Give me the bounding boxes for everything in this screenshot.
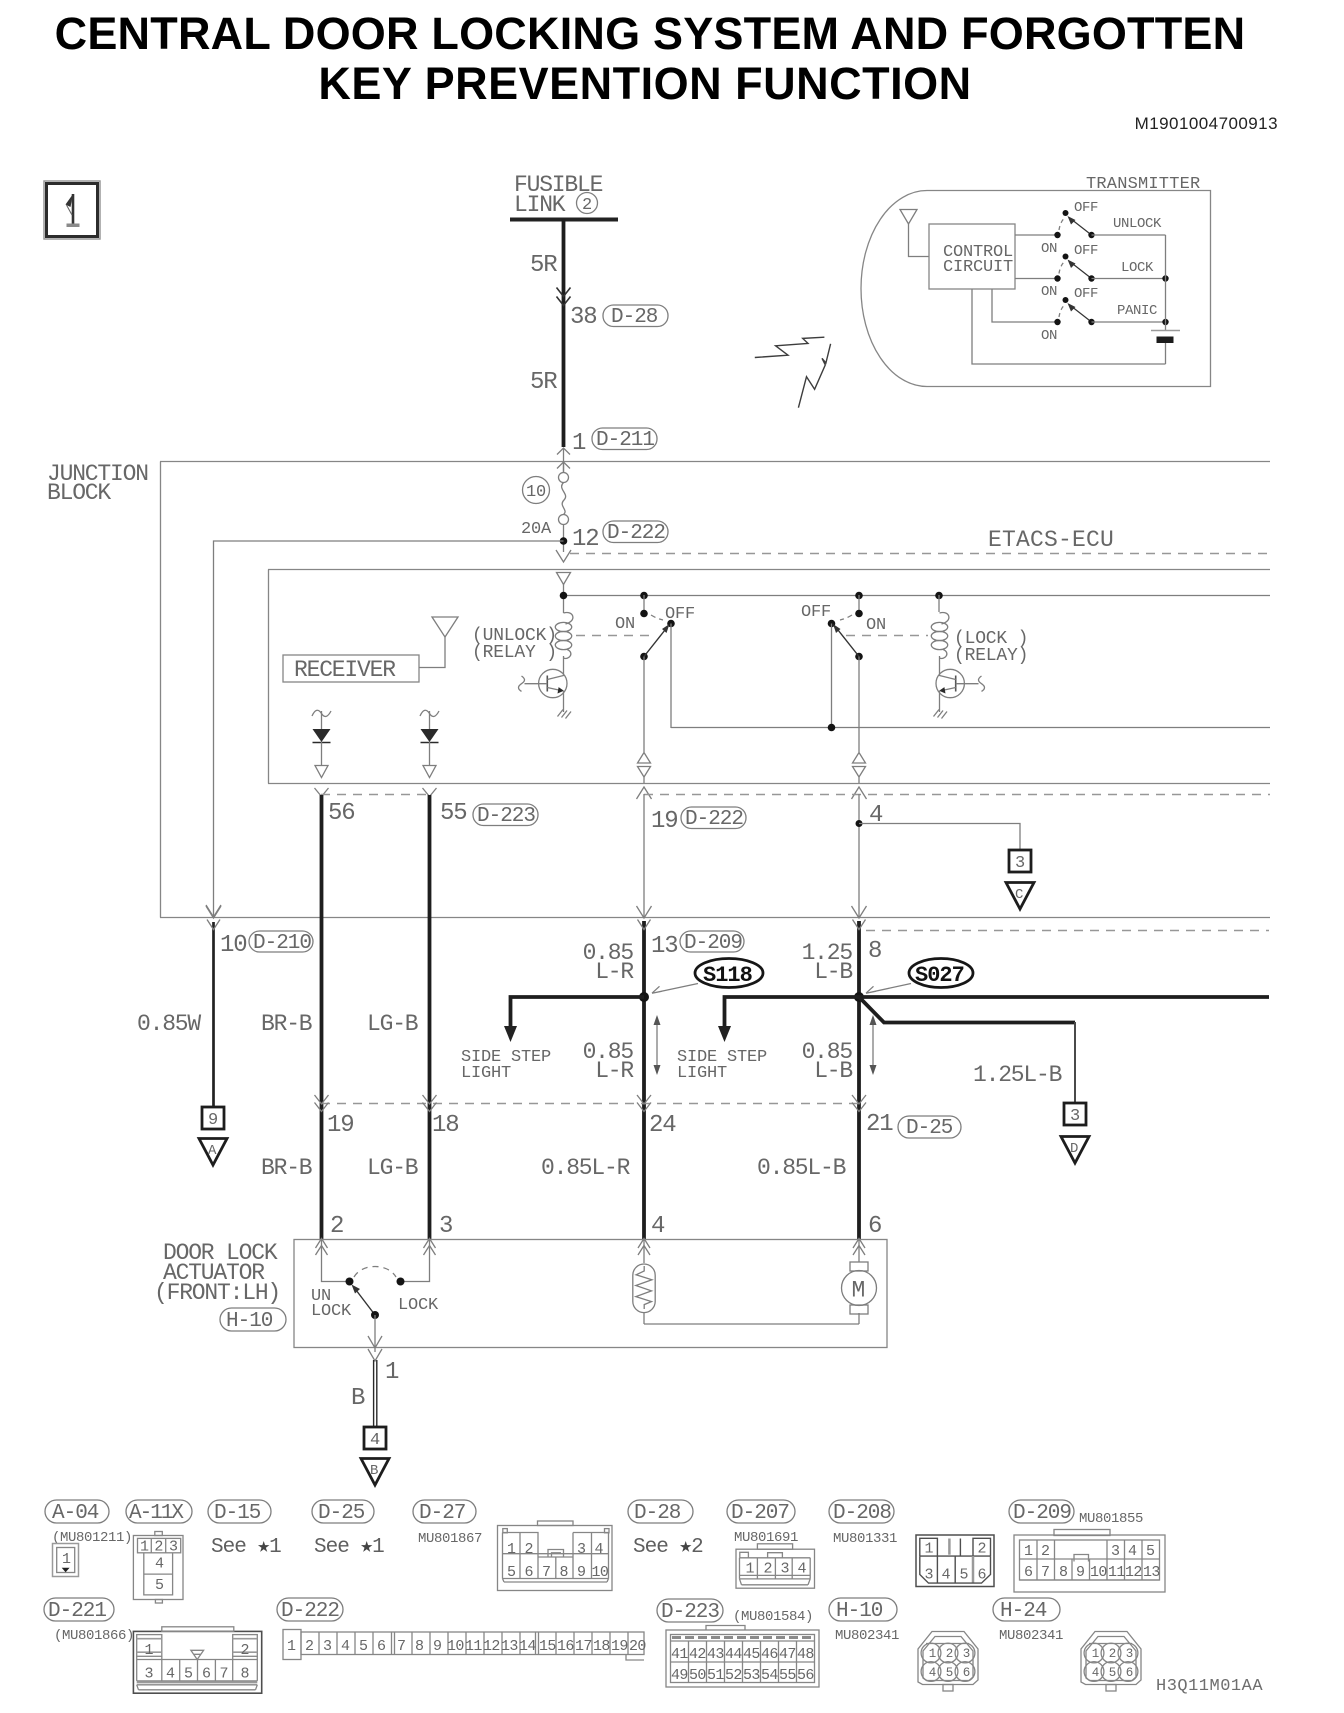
svg-text:12: 12 [572,526,598,553]
svg-text:12: 12 [483,1638,500,1655]
svg-text:OFF: OFF [1074,200,1098,216]
svg-text:D: D [1070,1141,1078,1157]
svg-text:(MU801866): (MU801866) [54,1628,134,1644]
svg-text:14: 14 [519,1638,536,1655]
svg-text:8: 8 [241,1666,250,1683]
svg-text:6: 6 [202,1666,211,1683]
svg-text:CIRCUIT: CIRCUIT [943,258,1013,277]
svg-text:4: 4 [798,1561,807,1578]
svg-text:3: 3 [1126,1647,1134,1661]
svg-text:41: 41 [671,1646,688,1663]
svg-text:18: 18 [593,1638,610,1655]
svg-text:LINK: LINK [514,192,566,218]
svg-text:M1901004700913: M1901004700913 [1135,114,1278,133]
svg-text:5: 5 [1109,1666,1117,1680]
svg-text:MU801855: MU801855 [1079,1511,1143,1527]
svg-text:M: M [852,1278,865,1304]
svg-text:6: 6 [963,1666,971,1680]
svg-text:19: 19 [327,1112,353,1139]
svg-text:7: 7 [542,1564,550,1581]
svg-text:8: 8 [560,1564,569,1581]
svg-text:L-B: L-B [814,959,852,985]
svg-text:BLOCK: BLOCK [47,480,111,506]
svg-text:BR-B: BR-B [261,1155,312,1181]
svg-text:ON: ON [1041,284,1057,300]
svg-text:8: 8 [415,1638,424,1655]
svg-text:D-207: D-207 [731,1502,789,1525]
svg-text:10: 10 [447,1638,464,1655]
svg-text:12: 12 [1125,1564,1142,1581]
svg-text:11: 11 [1108,1564,1125,1581]
svg-text:4: 4 [166,1666,175,1683]
svg-text:See ★1: See ★1 [314,1536,384,1559]
svg-text:43: 43 [707,1646,724,1663]
svg-text:B: B [370,1463,378,1479]
svg-text:24: 24 [649,1112,676,1139]
svg-text:See ★1: See ★1 [211,1536,281,1559]
svg-text:1: 1 [572,430,586,457]
svg-text:11: 11 [465,1638,482,1655]
svg-text:48: 48 [797,1646,814,1663]
svg-text:B: B [351,1385,365,1412]
svg-text:D-222: D-222 [281,1600,339,1623]
svg-text:44: 44 [725,1646,742,1663]
svg-text:1: 1 [62,1551,71,1568]
svg-text:5: 5 [946,1666,954,1680]
svg-text:9: 9 [433,1638,441,1655]
svg-text:5R: 5R [530,369,557,396]
svg-text:19: 19 [651,808,677,835]
svg-text:5: 5 [359,1638,368,1655]
svg-text:OFF: OFF [801,603,831,622]
svg-text:17: 17 [575,1638,592,1655]
svg-text:D-221: D-221 [48,1600,106,1623]
svg-text:6: 6 [1024,1564,1033,1581]
svg-text:1: 1 [507,1541,516,1558]
svg-text:H-10: H-10 [226,1310,273,1333]
svg-text:19: 19 [611,1638,628,1655]
svg-text:2: 2 [525,1541,533,1558]
svg-text:5: 5 [155,1577,164,1594]
svg-text:MU802341: MU802341 [835,1628,899,1644]
svg-text:4: 4 [1092,1666,1100,1680]
svg-text:2: 2 [764,1561,772,1578]
svg-text:L-R: L-R [595,959,634,985]
svg-text:2: 2 [1109,1647,1117,1661]
svg-text:2: 2 [241,1642,249,1659]
svg-text:13: 13 [501,1638,518,1655]
svg-text:3: 3 [169,1539,178,1556]
svg-text:A-11X: A-11X [129,1502,184,1525]
svg-text:(RELAY): (RELAY) [954,646,1028,666]
svg-text:D-209: D-209 [1013,1502,1071,1525]
svg-text:3: 3 [439,1213,452,1240]
svg-text:56: 56 [328,800,354,827]
svg-text:2: 2 [305,1638,313,1655]
svg-text:4: 4 [869,802,883,829]
svg-text:(RELAY ): (RELAY ) [472,643,557,663]
svg-text:5R: 5R [530,252,557,279]
svg-text:18: 18 [432,1112,458,1139]
svg-text:54: 54 [761,1667,778,1684]
svg-text:0.85L-R: 0.85L-R [541,1155,631,1181]
svg-text:OFF: OFF [1074,243,1098,259]
svg-text:5: 5 [1146,1543,1155,1560]
svg-text:20: 20 [629,1638,646,1655]
svg-text:L-B: L-B [814,1058,852,1084]
svg-text:4: 4 [942,1567,951,1584]
svg-text:LIGHT: LIGHT [677,1064,727,1083]
svg-text:D-25: D-25 [318,1502,365,1525]
svg-text:1: 1 [385,1359,399,1386]
svg-text:ON: ON [615,615,635,634]
svg-text:8: 8 [868,938,881,965]
svg-text:3: 3 [963,1647,971,1661]
svg-text:56: 56 [797,1667,814,1684]
svg-text:4: 4 [1128,1543,1137,1560]
svg-text:51: 51 [707,1667,724,1684]
svg-text:7: 7 [220,1666,228,1683]
svg-text:A-04: A-04 [52,1502,99,1525]
svg-text:H-24: H-24 [1000,1600,1047,1623]
svg-text:5: 5 [184,1666,193,1683]
svg-text:D-210: D-210 [253,932,311,955]
svg-text:LG-B: LG-B [367,1011,418,1037]
svg-text:D-223: D-223 [477,805,535,828]
svg-text:3: 3 [1111,1543,1120,1560]
svg-text:16: 16 [557,1638,574,1655]
svg-text:C: C [1015,887,1023,903]
svg-text:9: 9 [577,1564,585,1581]
svg-text:5: 5 [507,1564,516,1581]
svg-text:13: 13 [651,933,677,960]
svg-text:LIGHT: LIGHT [461,1064,511,1083]
svg-text:1: 1 [925,1541,934,1558]
svg-text:S118: S118 [703,963,753,988]
svg-text:(FRONT:LH): (FRONT:LH) [154,1280,280,1306]
svg-text:1: 1 [746,1561,755,1578]
svg-text:D-25: D-25 [906,1117,953,1140]
svg-text:2: 2 [978,1541,986,1558]
svg-text:D-27: D-27 [419,1502,465,1525]
svg-text:D-28: D-28 [611,306,658,329]
svg-text:4: 4 [651,1213,665,1240]
svg-text:ON: ON [1041,328,1057,344]
svg-text:H-10: H-10 [836,1600,883,1623]
svg-text:50: 50 [689,1667,706,1684]
svg-text:46: 46 [761,1646,778,1663]
svg-text:LOCK: LOCK [398,1296,439,1315]
svg-text:LG-B: LG-B [367,1155,418,1181]
svg-text:3: 3 [781,1561,790,1578]
svg-text:10: 10 [1090,1564,1107,1581]
svg-text:1: 1 [287,1638,296,1655]
svg-text:2: 2 [330,1213,343,1240]
svg-text:1: 1 [1024,1543,1033,1560]
svg-text:1: 1 [140,1539,149,1556]
svg-text:3: 3 [577,1541,586,1558]
svg-text:55: 55 [440,800,466,827]
svg-text:A: A [208,1143,217,1159]
svg-text:LOCK: LOCK [311,1302,352,1321]
svg-text:D-209: D-209 [684,932,742,955]
svg-text:2: 2 [946,1647,954,1661]
svg-text:6: 6 [377,1638,386,1655]
svg-text:4: 4 [929,1666,937,1680]
svg-text:3: 3 [145,1666,154,1683]
svg-text:D-15: D-15 [214,1502,261,1525]
svg-text:2: 2 [154,1539,162,1556]
svg-text:LOCK: LOCK [1121,260,1154,276]
svg-text:55: 55 [779,1667,796,1684]
svg-text:42: 42 [689,1646,706,1663]
svg-text:3: 3 [1015,854,1025,873]
svg-text:38: 38 [570,304,596,331]
svg-text:ON: ON [866,616,886,635]
svg-text:3: 3 [1070,1107,1080,1126]
svg-text:UNLOCK: UNLOCK [1113,216,1162,232]
svg-text:KEY PREVENTION FUNCTION: KEY PREVENTION FUNCTION [318,58,971,109]
svg-text:47: 47 [779,1646,796,1663]
svg-text:6: 6 [978,1567,987,1584]
svg-text:MU801331: MU801331 [833,1531,897,1547]
svg-text:9: 9 [208,1111,218,1130]
svg-text:RECEIVER: RECEIVER [294,657,396,683]
svg-text:7: 7 [1041,1564,1049,1581]
svg-text:PANIC: PANIC [1117,303,1157,319]
svg-text:45: 45 [743,1646,760,1663]
svg-text:52: 52 [725,1667,742,1684]
svg-text:BR-B: BR-B [261,1011,312,1037]
svg-text:MU802341: MU802341 [999,1628,1063,1644]
svg-text:2: 2 [582,196,592,215]
svg-text:1: 1 [929,1647,937,1661]
svg-text:10: 10 [526,483,546,502]
svg-text:6: 6 [868,1213,881,1240]
svg-text:6: 6 [1126,1666,1134,1680]
svg-text:1: 1 [145,1642,154,1659]
svg-text:ETACS-ECU: ETACS-ECU [988,527,1114,553]
svg-text:8: 8 [1059,1564,1068,1581]
svg-text:0.85L-B: 0.85L-B [757,1155,846,1181]
svg-text:15: 15 [539,1638,556,1655]
svg-text:1.25L-B: 1.25L-B [973,1062,1062,1088]
svg-text:S027: S027 [915,963,964,988]
svg-text:21: 21 [866,1111,893,1138]
svg-text:H3Q11M01AA: H3Q11M01AA [1156,1677,1263,1696]
svg-text:D-223: D-223 [661,1601,719,1624]
svg-text:4: 4 [341,1638,350,1655]
svg-text:6: 6 [525,1564,534,1581]
svg-text:See ★2: See ★2 [633,1536,703,1559]
svg-text:D-28: D-28 [634,1502,681,1525]
svg-text:10: 10 [220,932,246,959]
svg-text:OFF: OFF [1074,286,1098,302]
svg-text:1: 1 [1092,1647,1100,1661]
svg-text:3: 3 [323,1638,332,1655]
svg-text:L-R: L-R [595,1058,634,1084]
svg-text:D-222: D-222 [607,522,665,545]
svg-text:D-208: D-208 [833,1502,891,1525]
svg-text:10: 10 [592,1564,609,1581]
svg-text:3: 3 [925,1567,934,1584]
svg-text:CENTRAL DOOR LOCKING SYSTEM AN: CENTRAL DOOR LOCKING SYSTEM AND FORGOTTE… [55,8,1246,59]
svg-text:2: 2 [1041,1543,1049,1560]
svg-text:7: 7 [397,1638,405,1655]
svg-text:49: 49 [671,1667,688,1684]
svg-text:20A: 20A [521,520,552,539]
svg-text:4: 4 [155,1556,164,1573]
svg-text:MU801867: MU801867 [418,1531,482,1547]
svg-text:4: 4 [595,1541,604,1558]
svg-text:9: 9 [1076,1564,1084,1581]
svg-text:13: 13 [1143,1564,1160,1581]
svg-text:53: 53 [743,1667,760,1684]
svg-text:D-211: D-211 [596,429,654,452]
svg-text:D-222: D-222 [685,808,743,831]
svg-text:0.85W: 0.85W [137,1011,201,1037]
svg-text:ON: ON [1041,241,1057,257]
svg-text:5: 5 [960,1567,969,1584]
svg-text:(MU801584): (MU801584) [733,1609,813,1625]
svg-text:4: 4 [370,1431,380,1450]
